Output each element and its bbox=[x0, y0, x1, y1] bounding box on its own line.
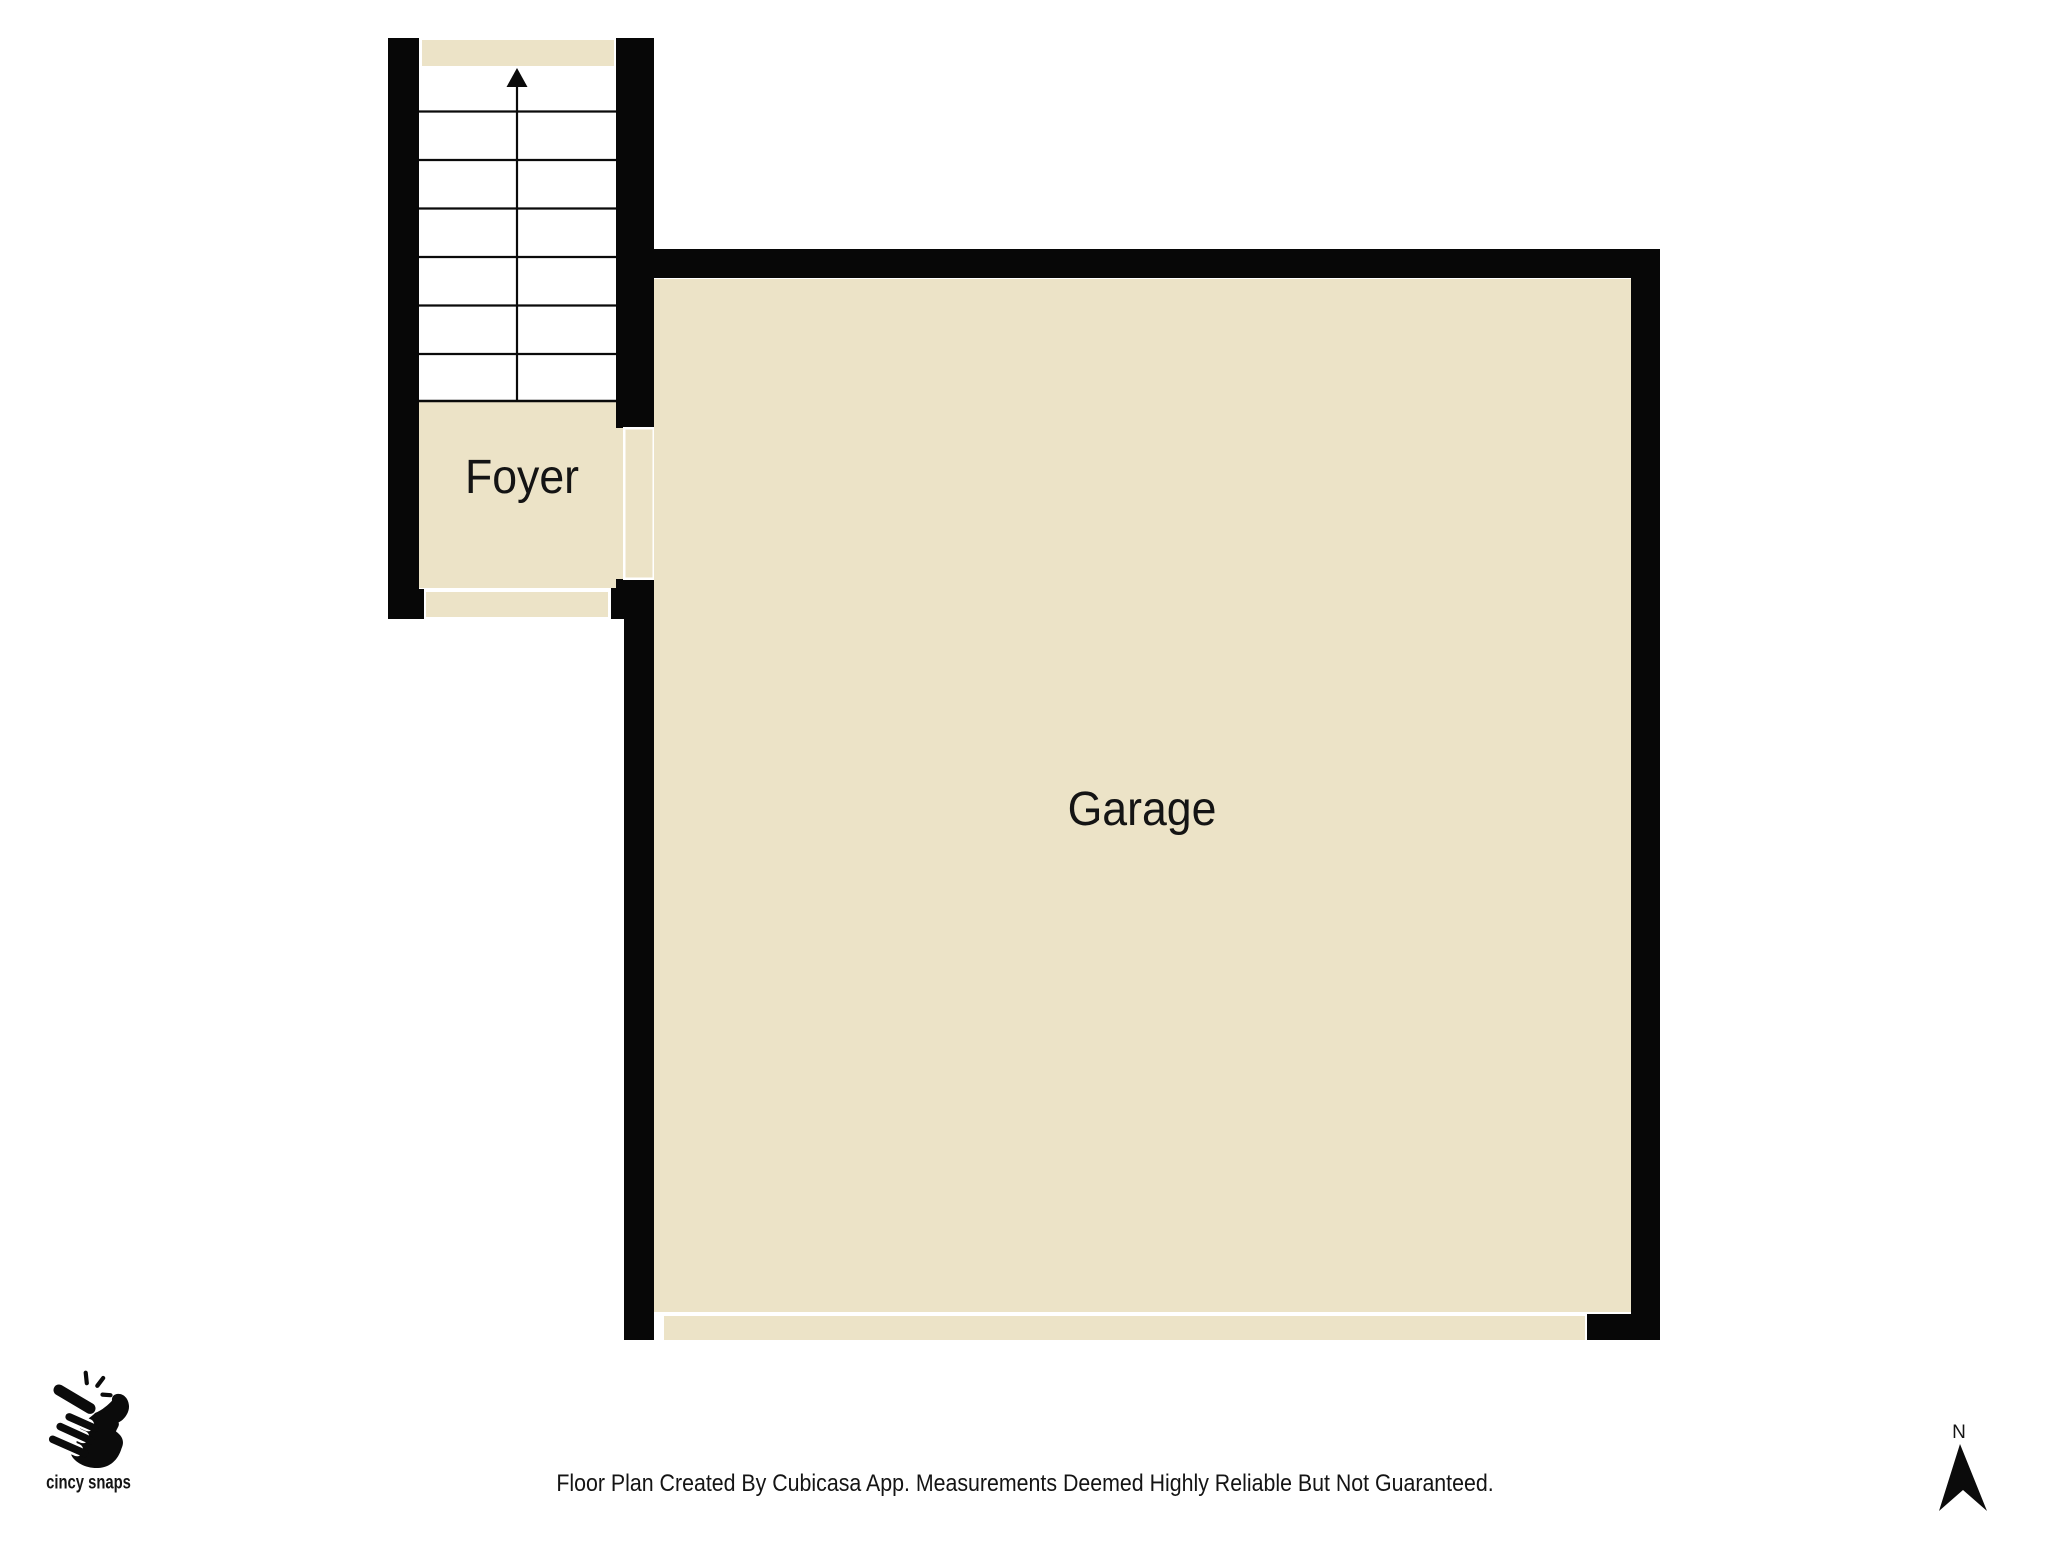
svg-text:Foyer: Foyer bbox=[465, 450, 579, 504]
svg-text:Garage: Garage bbox=[1068, 782, 1217, 836]
svg-text:cincy snaps: cincy snaps bbox=[46, 1472, 131, 1493]
svg-text:N: N bbox=[1952, 1422, 1966, 1443]
svg-text:Floor Plan Created By Cubicasa: Floor Plan Created By Cubicasa App. Meas… bbox=[556, 1469, 1493, 1496]
